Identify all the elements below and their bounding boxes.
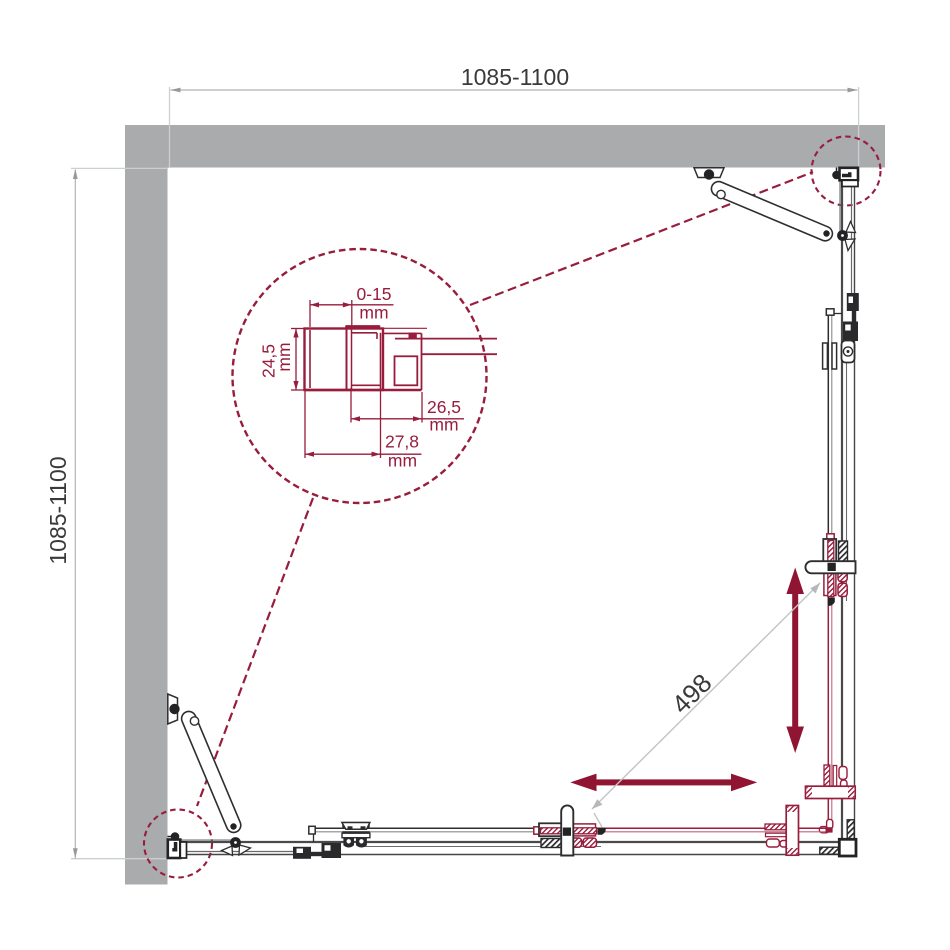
svg-text:mm: mm <box>359 303 388 323</box>
svg-text:1085-1100: 1085-1100 <box>45 456 71 564</box>
svg-text:27,8: 27,8 <box>385 432 419 452</box>
svg-text:mm: mm <box>388 451 417 471</box>
svg-text:mm: mm <box>429 415 458 435</box>
svg-text:mm: mm <box>274 342 294 371</box>
svg-text:0-15: 0-15 <box>356 284 391 304</box>
svg-text:1085-1100: 1085-1100 <box>461 64 569 90</box>
